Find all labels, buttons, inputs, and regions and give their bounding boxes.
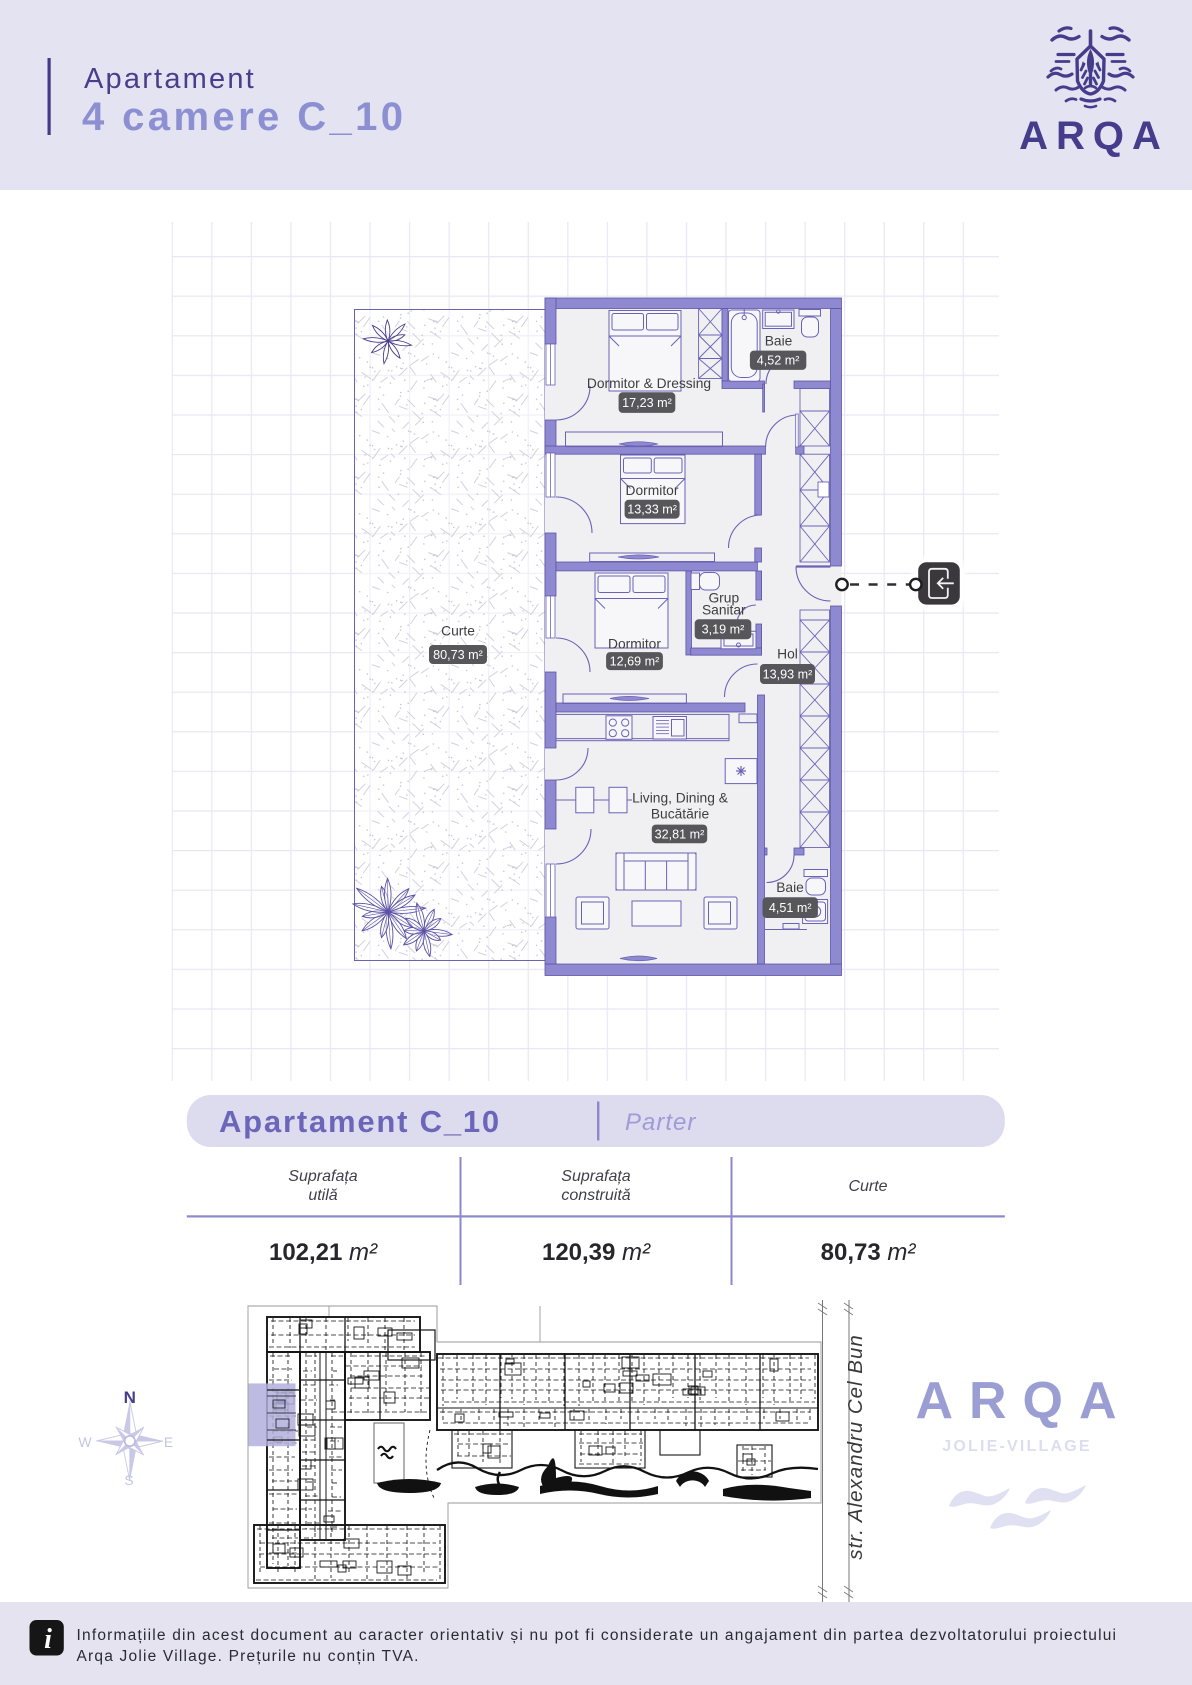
svg-text:Suprafața: Suprafața <box>288 1168 357 1185</box>
svg-text:12,69 m²: 12,69 m² <box>610 655 660 669</box>
svg-text:Dormitor: Dormitor <box>626 483 679 498</box>
svg-text:80,73 m²: 80,73 m² <box>433 648 483 662</box>
svg-text:W: W <box>78 1434 92 1450</box>
svg-text:102,21 m²: 102,21 m² <box>269 1239 378 1266</box>
svg-text:Informațiile din acest documen: Informațiile din acest document au carac… <box>77 1627 1118 1644</box>
svg-text:str. Alexandru Cel Bun: str. Alexandru Cel Bun <box>844 1334 867 1560</box>
svg-text:Living, Dining &: Living, Dining & <box>632 791 728 806</box>
svg-text:Parter: Parter <box>625 1109 696 1136</box>
svg-text:Apartament C_10: Apartament C_10 <box>219 1104 501 1139</box>
svg-text:13,33 m²: 13,33 m² <box>627 503 677 517</box>
svg-text:E: E <box>164 1434 173 1450</box>
svg-text:Dormitor & Dressing: Dormitor & Dressing <box>587 376 711 391</box>
svg-text:Apartament: Apartament <box>84 63 256 95</box>
svg-text:Dormitor: Dormitor <box>608 637 661 652</box>
svg-text:utilă: utilă <box>308 1187 337 1204</box>
svg-text:JOLIE-VILLAGE: JOLIE-VILLAGE <box>942 1438 1092 1455</box>
svg-text:80,73 m²: 80,73 m² <box>821 1239 917 1266</box>
svg-text:13,93 m²: 13,93 m² <box>763 667 813 681</box>
svg-text:Curte: Curte <box>441 624 475 639</box>
svg-text:17,23 m²: 17,23 m² <box>622 396 672 410</box>
svg-text:32,81 m²: 32,81 m² <box>655 827 705 841</box>
svg-text:120,39 m²: 120,39 m² <box>542 1239 651 1266</box>
svg-text:Bucătărie: Bucătărie <box>651 807 710 822</box>
svg-text:Suprafața: Suprafața <box>561 1168 630 1185</box>
svg-text:ARQA: ARQA <box>1019 114 1169 158</box>
svg-text:4,52 m²: 4,52 m² <box>757 354 800 368</box>
svg-text:construită: construită <box>561 1187 630 1204</box>
svg-text:i: i <box>44 1624 52 1655</box>
svg-text:Hol: Hol <box>777 646 798 661</box>
svg-text:Arqa Jolie Village. Prețurile: Arqa Jolie Village. Prețurile nu conțin … <box>77 1648 420 1665</box>
svg-text:4,51 m²: 4,51 m² <box>769 901 812 915</box>
svg-text:Sanitar: Sanitar <box>702 603 746 618</box>
svg-text:N: N <box>124 1388 136 1407</box>
svg-text:ARQA: ARQA <box>915 1372 1132 1430</box>
svg-text:3,19 m²: 3,19 m² <box>702 623 745 637</box>
svg-text:Baie: Baie <box>776 880 804 895</box>
svg-text:4 camere C_10: 4 camere C_10 <box>82 95 406 139</box>
svg-text:Baie: Baie <box>765 334 793 349</box>
svg-text:S: S <box>124 1472 133 1488</box>
svg-text:Curte: Curte <box>848 1178 887 1195</box>
